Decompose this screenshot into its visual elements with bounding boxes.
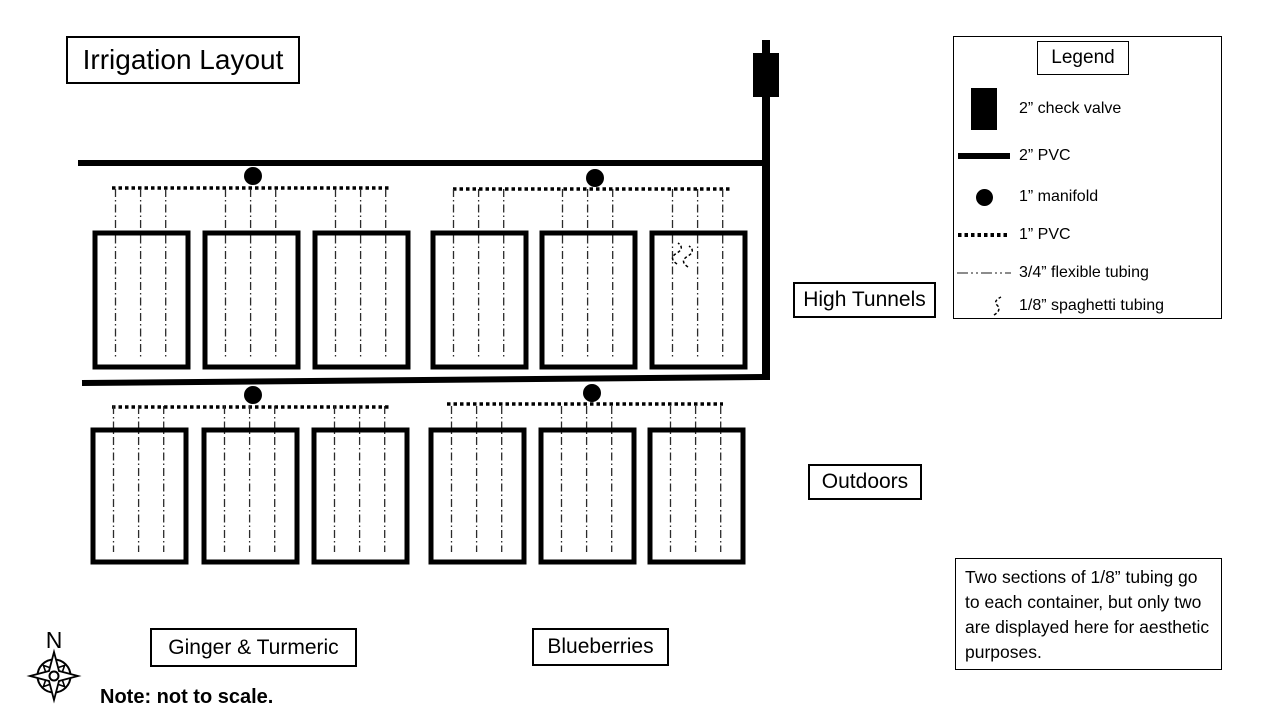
legend-item-flexible-tubing: 3/4” flexible tubing — [954, 259, 1221, 286]
tubing-note-text: Two sections of 1/8” tubing go to each c… — [965, 567, 1209, 662]
legend-item-pvc-1in: 1” PVC — [954, 221, 1221, 248]
irrigation-layout-page: Irrigation Layout High Tunnels Outdoors … — [0, 0, 1280, 720]
label-ginger-turmeric-text: Ginger & Turmeric — [168, 636, 338, 660]
container-box — [204, 430, 297, 562]
pvc-1in-icon — [957, 232, 1011, 238]
container-box — [315, 233, 408, 367]
legend-item-check-valve: 2” check valve — [954, 87, 1221, 131]
legend-item-manifold: 1” manifold — [954, 183, 1221, 211]
container-box — [542, 233, 635, 367]
spaghetti-tubing-squiggle — [684, 246, 693, 267]
label-outdoors: Outdoors — [808, 464, 922, 500]
container-box — [431, 430, 524, 562]
container-box — [205, 233, 298, 367]
container-box — [650, 430, 743, 562]
label-outdoors-text: Outdoors — [822, 470, 908, 494]
legend-item-label: 1” PVC — [1019, 226, 1071, 244]
label-high-tunnels-text: High Tunnels — [803, 288, 926, 312]
manifold-dot — [583, 384, 601, 402]
manifold-dot — [244, 167, 262, 185]
container-box — [541, 430, 634, 562]
container-box — [433, 233, 526, 367]
legend-title: Legend — [1037, 41, 1129, 75]
manifold-dot — [586, 169, 604, 187]
manifold-dot — [244, 386, 262, 404]
spaghetti-tubing-icon — [990, 295, 1006, 317]
compass-rose — [30, 652, 78, 700]
main-pvc-bottom-line — [82, 377, 766, 383]
legend-title-text: Legend — [1051, 47, 1114, 69]
spaghetti-tubing-squiggle — [673, 243, 682, 264]
flexible-tubing-icon — [956, 270, 1012, 276]
container-box — [314, 430, 407, 562]
legend-item-label: 2” PVC — [1019, 147, 1071, 165]
scale-note-text: Note: not to scale. — [100, 686, 273, 708]
legend-item-label: 1/8” spaghetti tubing — [1019, 297, 1164, 315]
label-blueberries-text: Blueberries — [547, 635, 653, 659]
label-blueberries: Blueberries — [532, 628, 669, 666]
page-title: Irrigation Layout — [66, 36, 300, 84]
legend-item-spaghetti-tubing: 1/8” spaghetti tubing — [954, 292, 1221, 319]
label-high-tunnels: High Tunnels — [793, 282, 936, 318]
manifold-icon — [976, 189, 993, 206]
compass-north-text: N — [46, 627, 63, 653]
legend-item-pvc-2in: 2” PVC — [954, 141, 1221, 171]
legend-item-label: 3/4” flexible tubing — [1019, 264, 1149, 282]
pvc-2in-icon — [958, 153, 1010, 159]
check-valve-icon — [971, 88, 997, 130]
check-valve — [753, 53, 779, 97]
container-box — [652, 233, 745, 367]
tubing-note-box: Two sections of 1/8” tubing go to each c… — [955, 558, 1222, 670]
legend-item-label: 1” manifold — [1019, 188, 1098, 206]
legend: Legend 2” check valve 2” PVC 1” manifold… — [953, 36, 1222, 319]
legend-item-label: 2” check valve — [1019, 100, 1121, 118]
label-ginger-turmeric: Ginger & Turmeric — [150, 628, 357, 667]
page-title-text: Irrigation Layout — [83, 44, 284, 76]
scale-note: Note: not to scale. — [100, 686, 273, 709]
compass-north-label: N — [42, 627, 66, 654]
container-box — [93, 430, 186, 562]
container-box — [95, 233, 188, 367]
